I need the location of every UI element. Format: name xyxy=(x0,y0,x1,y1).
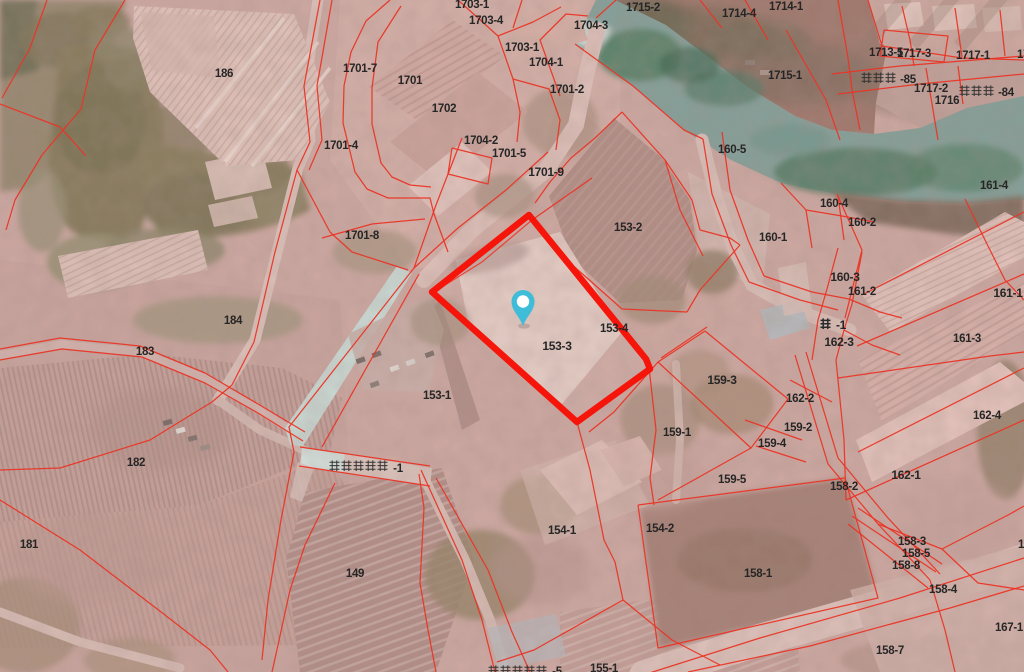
svg-text:1717-1: 1717-1 xyxy=(1017,49,1024,61)
svg-text:160-4: 160-4 xyxy=(820,198,849,210)
svg-text:160-2: 160-2 xyxy=(848,217,876,229)
svg-text:160-3: 160-3 xyxy=(830,270,860,284)
svg-text:160-5: 160-5 xyxy=(718,144,747,156)
svg-text:183: 183 xyxy=(136,346,154,358)
svg-text:1703-4: 1703-4 xyxy=(469,15,504,27)
svg-text:158-1: 158-1 xyxy=(744,568,773,580)
svg-text:-85: -85 xyxy=(900,74,917,86)
svg-text:160-1: 160-1 xyxy=(759,232,788,244)
svg-text:182: 182 xyxy=(127,457,145,469)
svg-text:158-2: 158-2 xyxy=(830,481,858,493)
svg-text:-84: -84 xyxy=(998,87,1015,99)
svg-text:162-4: 162-4 xyxy=(973,410,1002,422)
svg-text:-1: -1 xyxy=(393,463,404,475)
svg-text:1701-7: 1701-7 xyxy=(343,63,377,75)
svg-text:158-8: 158-8 xyxy=(892,560,921,572)
svg-text:167-1: 167-1 xyxy=(995,622,1024,634)
svg-text:1703-1: 1703-1 xyxy=(505,42,540,54)
svg-text:1701-4: 1701-4 xyxy=(324,140,359,152)
svg-text:158-7: 158-7 xyxy=(876,645,904,657)
svg-text:1717-1: 1717-1 xyxy=(956,50,991,62)
svg-text:161-2: 161-2 xyxy=(848,286,876,298)
svg-text:154-2: 154-2 xyxy=(646,523,674,535)
svg-text:158-4: 158-4 xyxy=(929,584,958,596)
svg-text:159-1: 159-1 xyxy=(663,427,692,439)
svg-text:158-3: 158-3 xyxy=(898,536,926,548)
svg-text:154-1: 154-1 xyxy=(548,525,577,537)
svg-text:159-5: 159-5 xyxy=(718,474,747,486)
svg-text:-5: -5 xyxy=(552,666,563,672)
svg-text:1716: 1716 xyxy=(935,95,959,107)
svg-text:153-1: 153-1 xyxy=(423,390,452,402)
svg-text:158-5: 158-5 xyxy=(902,548,931,560)
svg-text:1701-8: 1701-8 xyxy=(345,230,380,242)
svg-text:186: 186 xyxy=(215,68,233,80)
svg-text:-1: -1 xyxy=(836,318,847,332)
svg-text:149: 149 xyxy=(346,568,364,580)
svg-text:161-1: 161-1 xyxy=(993,286,1023,300)
svg-text:1714-1: 1714-1 xyxy=(769,1,804,13)
svg-text:1704-2: 1704-2 xyxy=(464,135,498,147)
svg-text:1701-5: 1701-5 xyxy=(492,148,527,160)
svg-text:1701-9: 1701-9 xyxy=(528,165,564,179)
svg-text:153-4: 153-4 xyxy=(600,323,629,335)
svg-text:1717-3: 1717-3 xyxy=(897,48,931,60)
svg-text:1715-1: 1715-1 xyxy=(768,70,803,82)
svg-text:181: 181 xyxy=(20,539,39,551)
svg-text:1704-1: 1704-1 xyxy=(529,57,564,69)
svg-text:1704-3: 1704-3 xyxy=(574,20,608,32)
svg-text:162-1: 162-1 xyxy=(891,468,921,482)
svg-text:1702: 1702 xyxy=(432,103,456,115)
svg-text:153-3: 153-3 xyxy=(542,339,572,353)
svg-text:1701-2: 1701-2 xyxy=(550,84,584,96)
svg-text:161-4: 161-4 xyxy=(980,180,1009,192)
svg-text:155-1: 155-1 xyxy=(590,663,619,672)
svg-text:1714-4: 1714-4 xyxy=(722,8,757,20)
svg-text:159-2: 159-2 xyxy=(784,422,812,434)
svg-text:162-1: 162-1 xyxy=(1018,539,1024,551)
svg-text:1701: 1701 xyxy=(398,75,423,87)
svg-text:161-3: 161-3 xyxy=(953,333,981,345)
svg-text:162-2: 162-2 xyxy=(786,393,814,405)
svg-text:1703-1: 1703-1 xyxy=(455,0,490,11)
svg-text:162-3: 162-3 xyxy=(824,335,854,349)
svg-text:159-4: 159-4 xyxy=(758,438,787,450)
svg-text:1717-2: 1717-2 xyxy=(914,83,948,95)
svg-text:153-2: 153-2 xyxy=(614,222,642,234)
svg-text:184: 184 xyxy=(224,315,243,327)
svg-text:1715-2: 1715-2 xyxy=(626,2,660,14)
svg-text:159-3: 159-3 xyxy=(707,373,737,387)
